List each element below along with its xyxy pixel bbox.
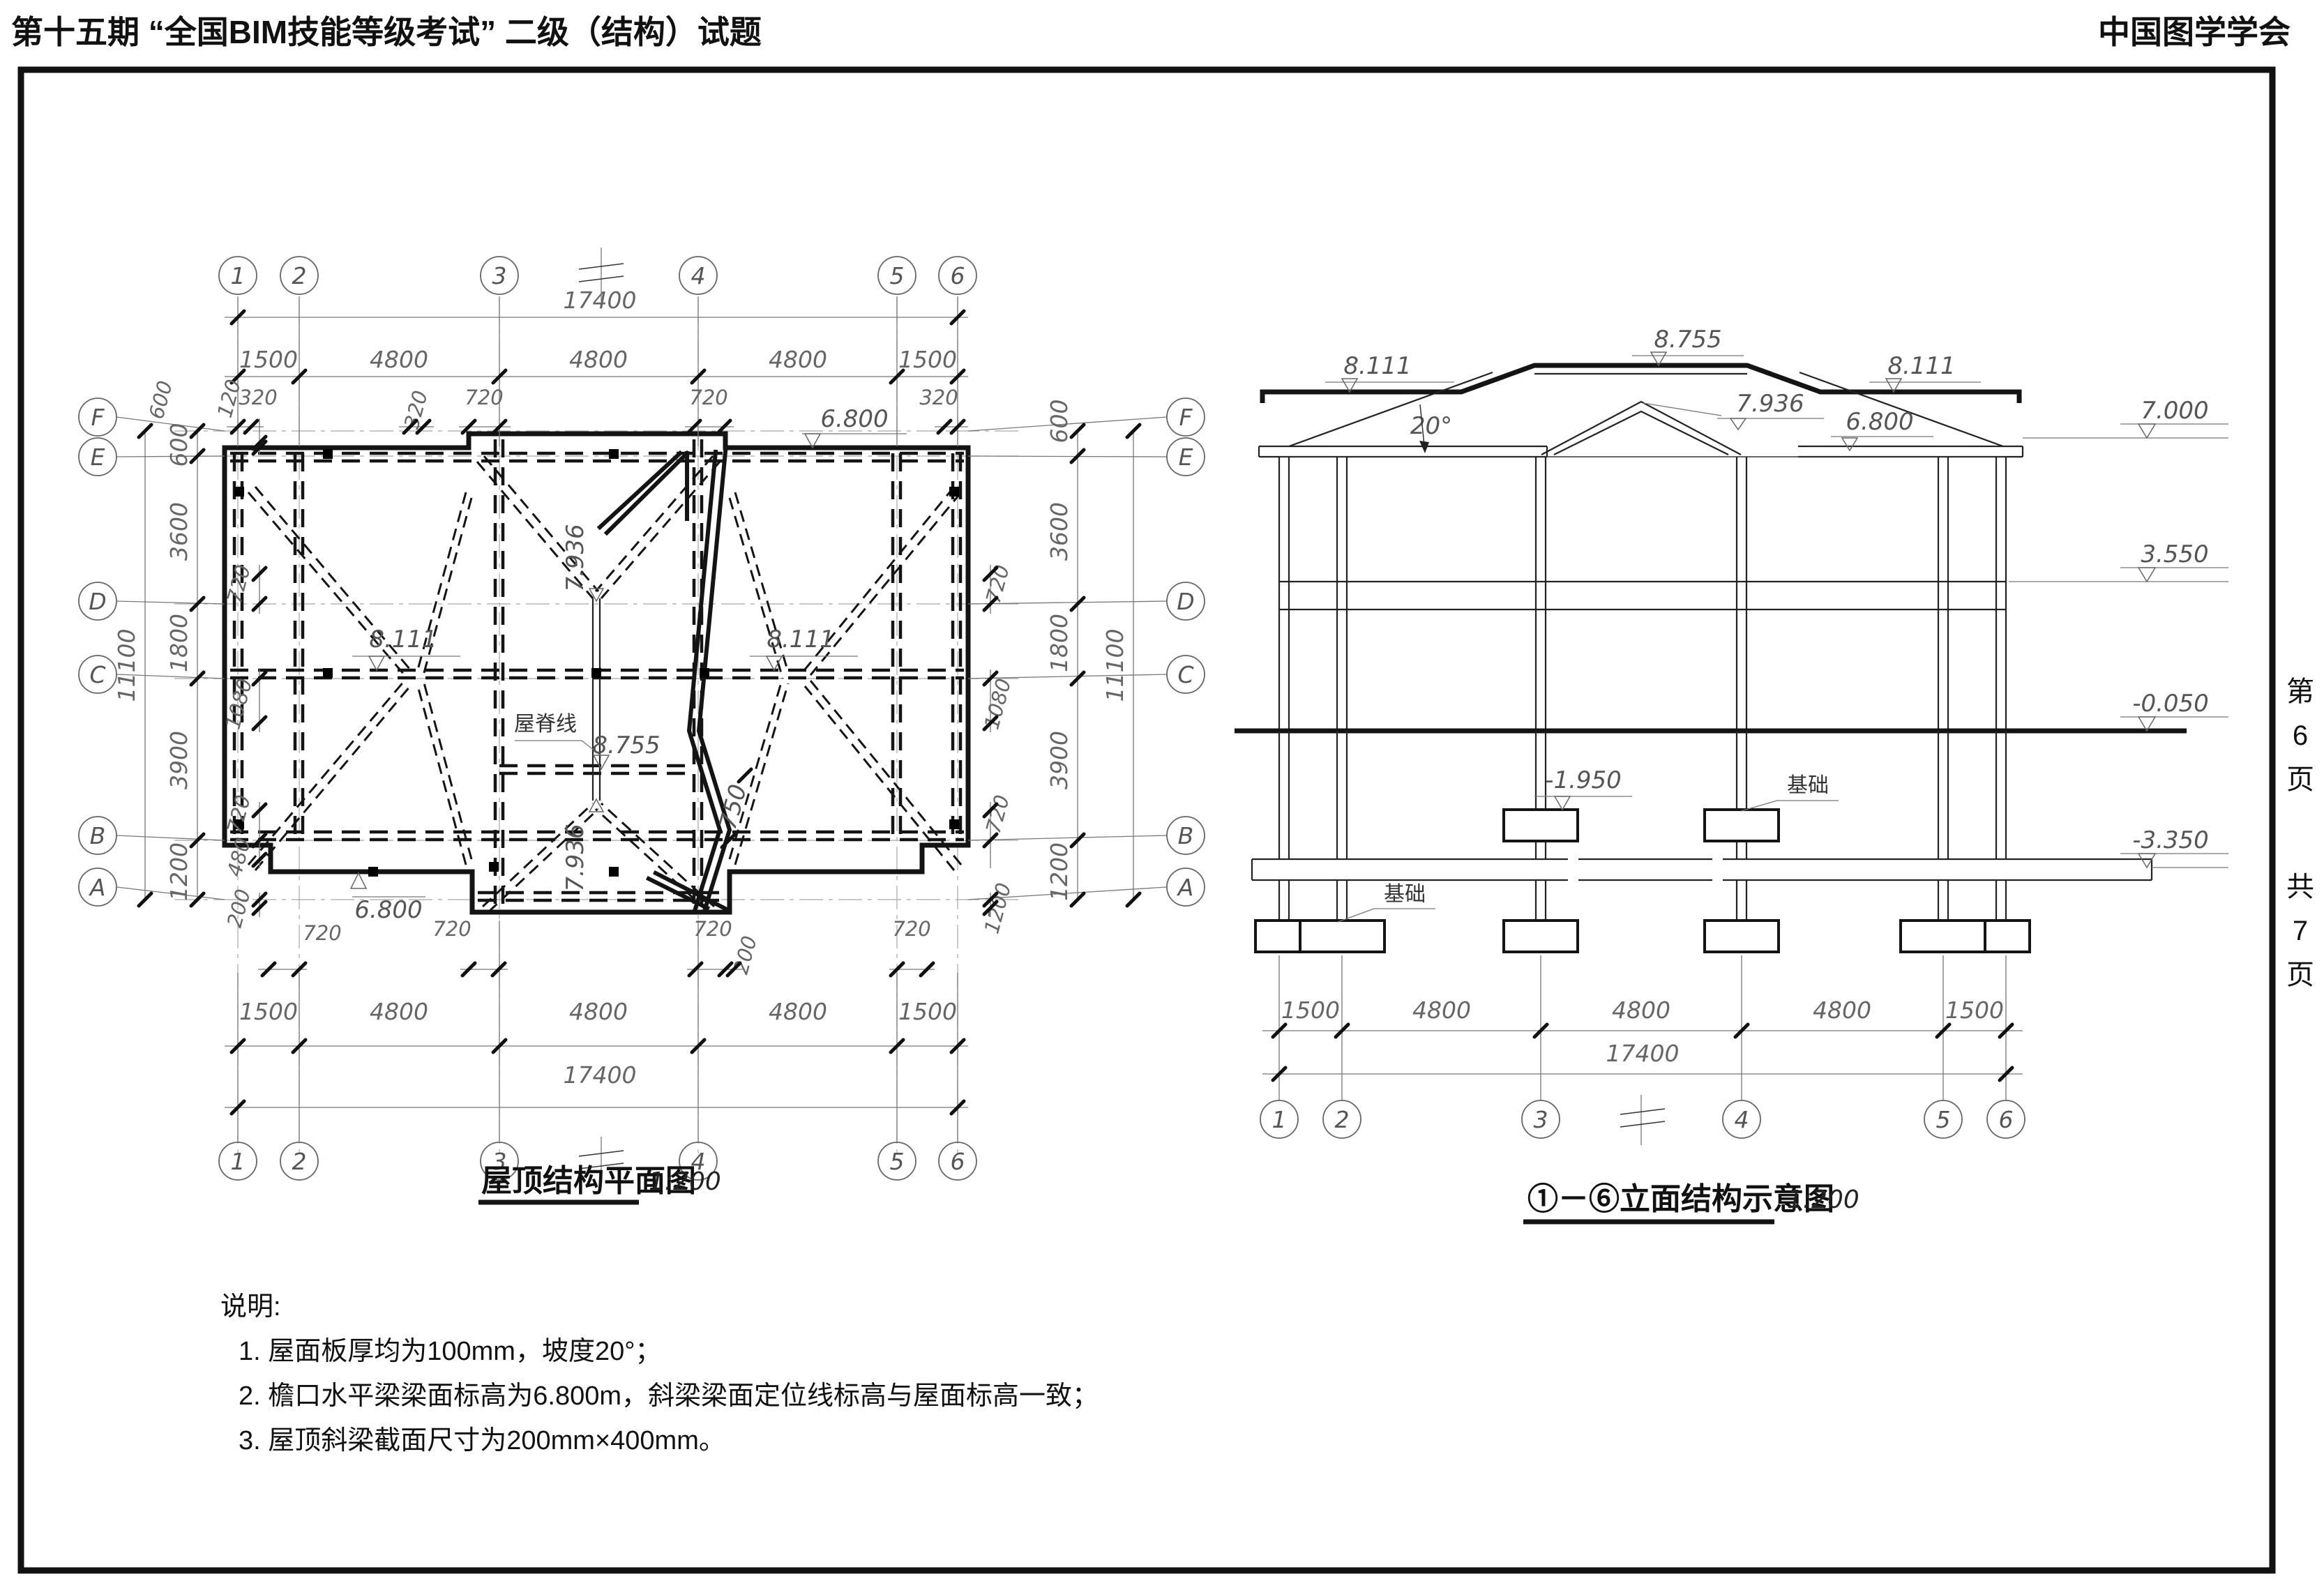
level-8111-elev-left: 8.111: [1343, 352, 1411, 380]
svg-text:720: 720: [222, 792, 255, 835]
svg-text:4: 4: [691, 262, 706, 289]
svg-text:1500: 1500: [239, 346, 298, 373]
svg-text:5: 5: [1936, 1106, 1951, 1133]
svg-text:6: 6: [951, 262, 965, 289]
note-item-1: 1. 屋面板厚均为100mm，坡度20°；: [239, 1337, 661, 1366]
svg-text:1200: 1200: [979, 880, 1016, 936]
level-6800-elev: 6.800: [1846, 408, 1913, 436]
svg-text:3: 3: [1534, 1106, 1548, 1133]
level-7936-bottom: 7.936: [561, 824, 589, 891]
svg-text:3600: 3600: [1046, 502, 1073, 561]
svg-text:600: 600: [165, 423, 193, 467]
svg-text:F: F: [91, 404, 105, 431]
svg-text:4800: 4800: [1612, 997, 1670, 1024]
svg-text:5: 5: [890, 1148, 905, 1175]
elevation-dimensions: 1500 4800 4800 4800 1500 17400 1 2 3 4 5…: [1260, 955, 2025, 1145]
svg-text:1: 1: [1272, 1106, 1287, 1133]
plan-dimensions-right: 600 3600 1800 3900 1200 11100 720 1080 7…: [968, 400, 1167, 937]
svg-text:11100: 11100: [113, 629, 140, 702]
svg-text:6: 6: [1999, 1106, 2014, 1133]
svg-text:4800: 4800: [769, 346, 827, 373]
svg-text:B: B: [90, 822, 106, 849]
svg-text:480: 480: [222, 835, 255, 879]
svg-text:2: 2: [1335, 1106, 1350, 1133]
svg-text:4: 4: [1735, 1106, 1749, 1133]
drawing-sheet: 第十五期 “全国BIM技能等级考试” 二级（结构）试题 中国图学学会 第 6 页…: [0, 0, 2324, 1590]
note-item-2: 2. 檐口水平梁梁面标高为6.800m，斜梁梁面定位线标高与屋面标高一致；: [239, 1381, 1099, 1411]
svg-text:600: 600: [144, 378, 177, 421]
level-6800-top: 6.800: [820, 405, 888, 433]
svg-text:720: 720: [465, 386, 503, 409]
svg-text:C: C: [1177, 661, 1193, 688]
svg-text:1: 1: [231, 262, 246, 289]
svg-text:1800: 1800: [165, 614, 193, 672]
elevation-foundations: -1.950 基础 基础: [1252, 731, 2152, 952]
svg-text:720: 720: [432, 917, 471, 941]
svg-text:7: 7: [2293, 916, 2308, 946]
sheet-title: 第十五期 “全国BIM技能等级考试” 二级（结构）试题: [11, 14, 762, 50]
notes: 说明: 1. 屋面板厚均为100mm，坡度20°； 2. 檐口水平梁梁面标高为6…: [220, 1292, 1099, 1455]
sheet-header: 第十五期 “全国BIM技能等级考试” 二级（结构）试题 中国图学学会: [11, 14, 2291, 50]
svg-text:3600: 3600: [165, 502, 193, 561]
svg-text:720: 720: [689, 386, 727, 409]
svg-text:6: 6: [2293, 720, 2308, 751]
svg-text:4800: 4800: [769, 998, 827, 1025]
elevation-datum-levels: 7.000 3.550 -0.050 -3.350: [2009, 397, 2228, 868]
svg-text:17400: 17400: [1606, 1040, 1680, 1067]
svg-text:11100: 11100: [1101, 629, 1129, 702]
svg-text:页: 页: [2286, 764, 2314, 795]
elevation-structure: [1235, 457, 2187, 731]
plan-grid-lines: [174, 300, 1018, 1158]
plan-title: 屋顶结构平面图 1:200: [478, 1164, 721, 1202]
elevation-title: ①－⑥立面结构示意图 1:200: [1523, 1182, 1859, 1222]
ridge-line-label: 屋脊线: [514, 713, 577, 736]
angle-label: 20°: [1410, 412, 1452, 440]
svg-text:1200: 1200: [165, 842, 193, 901]
level-m0050: -0.050: [2132, 690, 2209, 718]
svg-text:A: A: [1177, 874, 1194, 901]
svg-text:2: 2: [292, 262, 307, 289]
foundation-label-bottom: 基础: [1384, 883, 1426, 906]
roof-plan: 8.111 8.111 6.800 6.800 7.936 7.936 屋脊线 …: [79, 248, 1205, 1202]
level-8111-elev-right: 8.111: [1887, 352, 1955, 380]
svg-text:4800: 4800: [569, 346, 628, 373]
svg-text:1500: 1500: [1281, 997, 1340, 1024]
svg-text:4800: 4800: [569, 998, 628, 1025]
svg-text:F: F: [1179, 404, 1193, 431]
level-7936-elev: 7.936: [1736, 390, 1804, 418]
svg-text:1:200: 1:200: [1787, 1186, 1859, 1214]
svg-text:4800: 4800: [1813, 997, 1871, 1024]
svg-text:2: 2: [292, 1148, 307, 1175]
plan-sloped-beams: [600, 452, 730, 911]
svg-text:320: 320: [919, 386, 958, 409]
svg-text:5: 5: [890, 262, 905, 289]
level-m3350: -3.350: [2132, 826, 2209, 854]
svg-text:E: E: [1179, 444, 1193, 471]
svg-text:720: 720: [303, 921, 341, 945]
svg-text:3900: 3900: [1046, 731, 1073, 789]
page-number: 第 6 页 共 7 页: [2286, 676, 2314, 990]
svg-text:C: C: [89, 661, 105, 688]
svg-text:B: B: [1178, 822, 1194, 849]
svg-text:720: 720: [693, 917, 732, 941]
organization-label: 中国图学学会: [2098, 14, 2291, 50]
notes-heading: 说明:: [220, 1292, 281, 1322]
svg-text:4800: 4800: [370, 998, 428, 1025]
svg-text:页: 页: [2286, 960, 2314, 990]
level-3550: 3.550: [2141, 540, 2208, 568]
svg-text:1: 1: [231, 1148, 246, 1175]
svg-text:1500: 1500: [1945, 997, 2004, 1024]
plan-level-annotations: 8.111 8.111 6.800 6.800 7.936 7.936 屋脊线 …: [351, 405, 907, 924]
elevation: 20°: [1235, 326, 2228, 1222]
svg-text:1800: 1800: [1046, 614, 1073, 672]
svg-text:1:200: 1:200: [649, 1167, 721, 1196]
svg-text:1200: 1200: [1046, 842, 1073, 901]
svg-text:4800: 4800: [370, 346, 428, 373]
plan-dimensions-bottom: 720 720 720 200 720 1500 4800 4800 4800 …: [225, 917, 968, 1142]
svg-text:320: 320: [239, 386, 277, 409]
plan-columns: [234, 449, 959, 877]
svg-text:3900: 3900: [165, 731, 193, 789]
svg-text:1500: 1500: [239, 998, 298, 1025]
svg-text:共: 共: [2286, 872, 2314, 902]
level-8111-right: 8.111: [767, 626, 834, 653]
svg-text:D: D: [1177, 588, 1194, 615]
svg-text:720: 720: [222, 562, 255, 605]
level-m1950: -1.950: [1545, 766, 1622, 794]
level-8111-left: 8.111: [369, 626, 437, 653]
svg-text:D: D: [89, 588, 106, 615]
svg-text:17400: 17400: [564, 1061, 637, 1089]
svg-text:200: 200: [222, 886, 255, 930]
svg-text:A: A: [89, 874, 106, 901]
svg-text:120: 120: [213, 377, 246, 420]
svg-text:17400: 17400: [564, 287, 637, 314]
level-7936-top: 7.936: [561, 524, 589, 591]
note-item-3: 3. 屋顶斜梁截面尺寸为200mm×400mm。: [239, 1426, 725, 1455]
svg-text:E: E: [91, 444, 105, 471]
svg-text:1500: 1500: [898, 346, 957, 373]
footing-mid-right: [1705, 810, 1779, 841]
svg-text:3: 3: [492, 262, 507, 289]
svg-text:1500: 1500: [898, 998, 957, 1025]
svg-text:第: 第: [2286, 676, 2314, 707]
svg-text:600: 600: [1046, 400, 1073, 444]
svg-text:6: 6: [951, 1148, 965, 1175]
level-8755-elev: 8.755: [1654, 326, 1721, 354]
level-6800-bottom: 6.800: [354, 896, 422, 924]
foundation-label-right: 基础: [1787, 774, 1829, 797]
level-7000: 7.000: [2141, 397, 2208, 425]
svg-text:4800: 4800: [1412, 997, 1471, 1024]
svg-text:720: 720: [892, 917, 930, 941]
footing-mid-left: [1504, 810, 1578, 841]
